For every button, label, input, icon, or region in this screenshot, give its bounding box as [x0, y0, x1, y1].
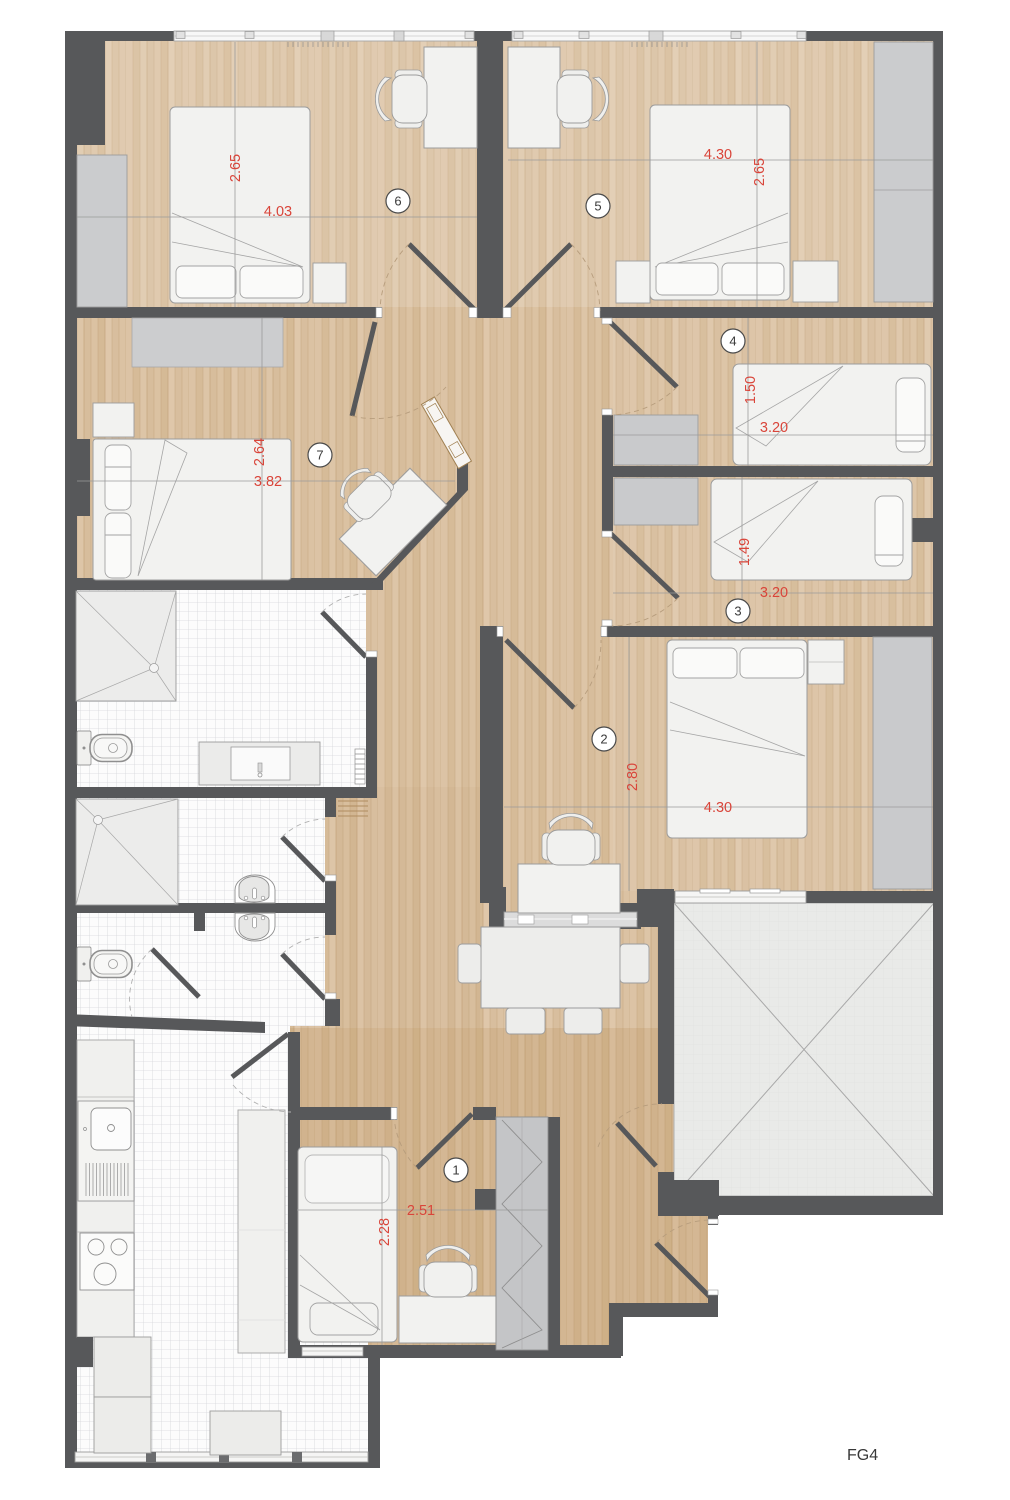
- svg-text:3: 3: [734, 604, 741, 619]
- svg-text:3.20: 3.20: [760, 585, 788, 601]
- svg-text:4: 4: [729, 334, 736, 349]
- svg-text:7: 7: [316, 448, 323, 463]
- svg-text:4.30: 4.30: [704, 147, 732, 163]
- svg-text:3.20: 3.20: [760, 420, 788, 436]
- svg-text:2.28: 2.28: [377, 1218, 393, 1246]
- svg-text:6: 6: [394, 194, 401, 209]
- svg-text:2.80: 2.80: [625, 763, 641, 791]
- svg-text:4.30: 4.30: [704, 800, 732, 816]
- svg-text:2.65: 2.65: [752, 158, 768, 186]
- svg-text:3.82: 3.82: [254, 474, 282, 490]
- svg-text:2.51: 2.51: [407, 1203, 435, 1219]
- svg-text:1: 1: [452, 1163, 459, 1178]
- svg-text:2.64: 2.64: [252, 438, 268, 466]
- svg-text:4.03: 4.03: [264, 204, 292, 220]
- svg-text:2.65: 2.65: [228, 154, 244, 182]
- svg-text:FG4: FG4: [847, 1447, 878, 1464]
- svg-text:1.50: 1.50: [743, 376, 759, 404]
- svg-text:1.49: 1.49: [737, 538, 753, 566]
- svg-text:2: 2: [600, 732, 607, 747]
- svg-text:5: 5: [594, 199, 601, 214]
